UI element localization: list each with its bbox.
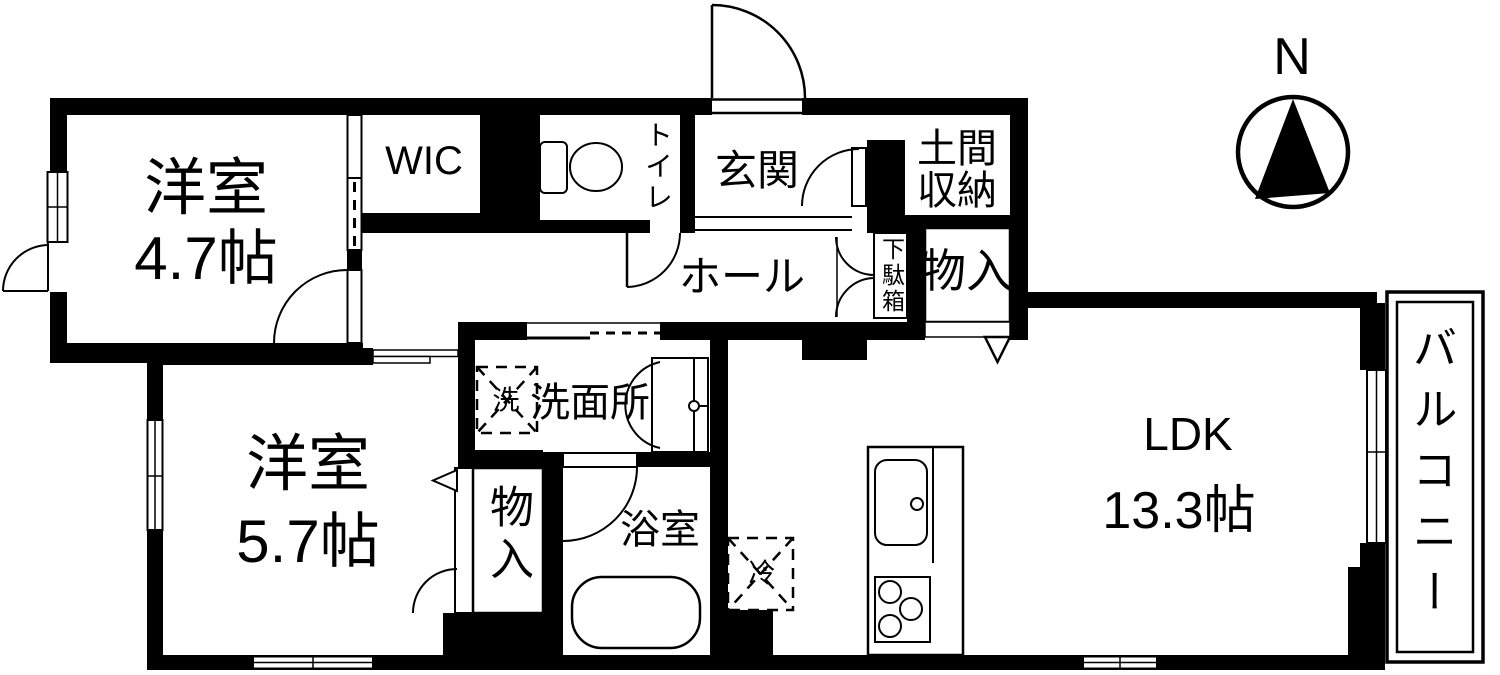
entry-triangle-icon [985,337,1010,362]
ldk-balcony-window-icon [1367,370,1386,543]
washer-label: 洗 [493,388,520,415]
wic-partition-icon [348,115,362,250]
fixtures [477,97,1348,655]
wic-label: WIC [385,141,463,181]
compass-icon [1238,97,1348,207]
bathroom-label: 浴室 [620,510,700,550]
washroom-label: 洗面所 [530,383,650,423]
storage-upper-label: 物入 [920,248,1012,294]
storage-lower-label: 物入 [485,484,529,588]
entrance-label: 玄関 [715,150,799,192]
bedroom2-area-label: 5.7帖 [236,512,379,572]
doma-door-arc-icon [802,148,866,206]
shoe-cabinet-label: 下駄箱 [880,237,903,315]
floor-plan: 洋室 4.7帖 WIC トイレ 玄関 土間 収納 ホール 下駄箱 物入 洋室 5… [0,0,1500,675]
bedroom1-area-label: 4.7帖 [134,229,277,289]
entrance-step-lines [695,217,852,230]
doma-storage-label-line2: 収納 [917,171,997,211]
washroom-sliding-door-icon [527,323,660,338]
ldk-bottom-window-icon [1083,657,1157,669]
doma-storage-label-line1: 土間 [917,129,997,169]
hall-label: ホール [679,256,805,298]
entrance-door-arc-icon [712,5,805,113]
bedroom2-bottom-window-icon [253,657,373,669]
bedroom1-label: 洋室 [144,158,268,220]
kitchen-counter-icon [868,447,963,655]
bathtub-icon [572,577,700,648]
bedroom2-label: 洋室 [246,434,370,496]
bedroom1-door-arc-icon [274,270,362,343]
toilet-door-arc-icon [627,233,680,287]
toilet-label: トイレ [643,121,671,214]
bedroom2-sliding-door-icon [373,350,458,363]
ldk-label: LDK [1143,411,1232,457]
balcony-label: バルコニー [1409,325,1454,630]
fridge-label: 冷 [749,561,776,588]
ldk-area-label: 13.3帖 [1102,485,1255,537]
compass-north-label: N [1273,31,1311,83]
bedroom2-window-icon [148,420,163,530]
toilet-icon [540,142,622,193]
bedroom1-window-icon [3,172,68,291]
